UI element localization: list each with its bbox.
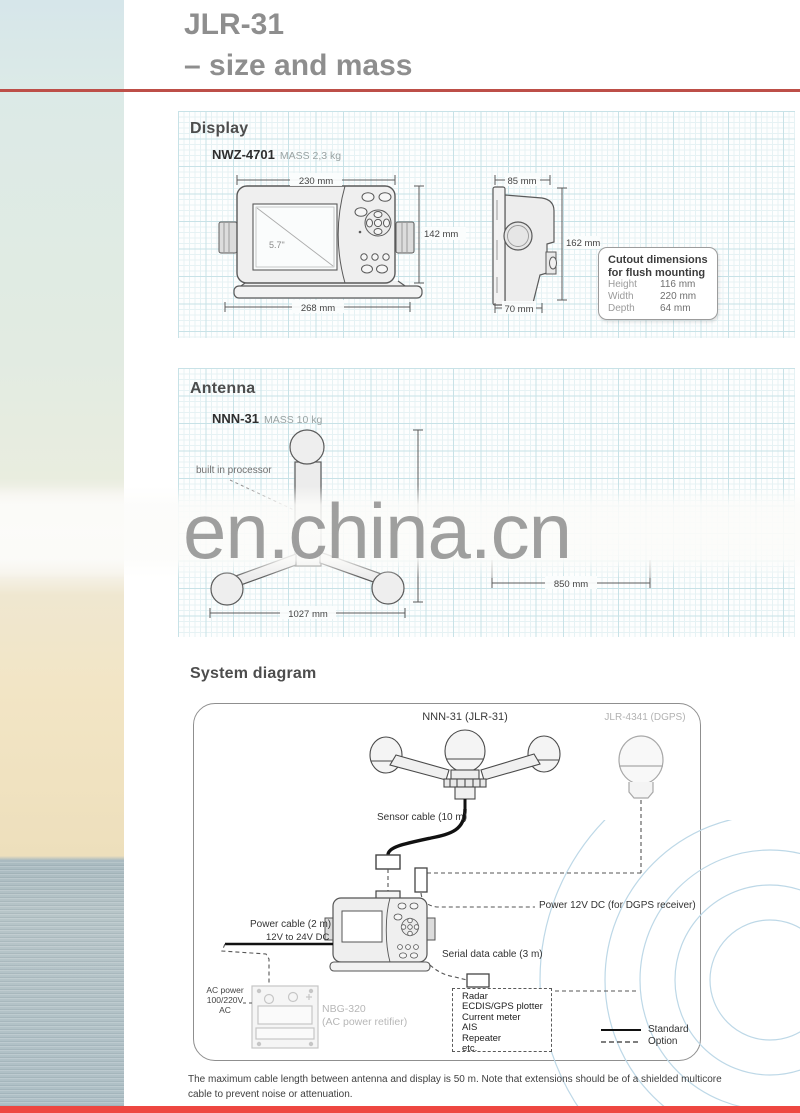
footer-note-line1: The maximum cable length between antenna… xyxy=(188,1072,722,1087)
rectifier-desc-label: (AC power retifier) xyxy=(322,1016,407,1028)
system-antenna-label: NNN-31 (JLR-31) xyxy=(400,711,530,723)
serial-cable-dashed xyxy=(430,965,467,980)
svg-text:85 mm: 85 mm xyxy=(507,176,536,187)
legend-option-label: Option xyxy=(648,1036,677,1047)
power-cable-label-line2: 12V to 24V DC xyxy=(266,932,329,943)
cutout-row-label: Width xyxy=(608,291,660,303)
dgps-power-label: Power 12V DC (for DGPS receiver) xyxy=(539,900,696,911)
rectifier-box xyxy=(252,986,318,1048)
legend-standard-label: Standard xyxy=(648,1024,689,1035)
antenna-width-dim: 1027 mm xyxy=(210,606,405,620)
bottom-red-bar xyxy=(0,1106,800,1113)
svg-text:230 mm: 230 mm xyxy=(299,176,333,187)
cutout-row-label: Depth xyxy=(608,303,660,315)
cutout-row-value: 220 mm xyxy=(660,291,696,303)
cutout-row: Height 116 mm xyxy=(608,279,708,291)
svg-text:1027 mm: 1027 mm xyxy=(288,609,328,620)
sensor-cable-label: Sensor cable (10 m) xyxy=(377,812,467,823)
legend-lines xyxy=(601,1030,641,1042)
cutout-row: Depth 64 mm xyxy=(608,303,708,315)
cutout-row-value: 64 mm xyxy=(660,303,691,315)
svg-text:268 mm: 268 mm xyxy=(301,303,335,314)
system-antenna xyxy=(370,730,560,799)
svg-text:70 mm: 70 mm xyxy=(504,304,533,315)
display-model: NWZ-4701 xyxy=(212,147,275,162)
rectifier-name-label: NBG-320 xyxy=(322,1003,366,1015)
dgps-dashed-cable xyxy=(427,800,641,873)
display-model-line: NWZ-4701MASS 2,3 kg xyxy=(212,146,341,164)
dgps-antenna xyxy=(619,736,663,798)
display-mass: MASS 2,3 kg xyxy=(280,150,341,162)
system-heading: System diagram xyxy=(190,665,316,683)
page-title-line2: – size and mass xyxy=(184,45,412,86)
dgps-power-connector xyxy=(415,868,427,892)
page-title: JLR-31 – size and mass xyxy=(184,4,412,86)
ac-power-label: AC power 100/220V AC xyxy=(200,985,250,1015)
screen-size-label: 5.7" xyxy=(269,240,285,250)
ac-power-line1: AC power xyxy=(200,985,250,995)
system-display-unit xyxy=(325,898,435,971)
side-body xyxy=(493,187,557,305)
power-cable-label-line1: Power cable (2 m) xyxy=(250,919,331,930)
watermark-text: en.china.cn xyxy=(183,486,571,576)
cutout-title-line1: Cutout dimensions xyxy=(608,254,708,267)
serial-cable-label: Serial data cable (3 m) xyxy=(442,949,543,960)
svg-text:142 mm: 142 mm xyxy=(424,229,458,240)
display-heading: Display xyxy=(190,120,248,138)
svg-text:850 mm: 850 mm xyxy=(554,579,588,590)
ac-power-line2: 100/220V AC xyxy=(200,995,250,1015)
cutout-row: Width 220 mm xyxy=(608,291,708,303)
dgps-power-dashed xyxy=(421,893,535,907)
datasheet-page: JLR-31 – size and mass Display NWZ-4701M… xyxy=(0,0,800,1113)
dgps-label: JLR-4341 (DGPS) xyxy=(598,712,692,723)
cutout-row-value: 116 mm xyxy=(660,279,695,291)
cutout-dimensions-box: Cutout dimensions for flush mounting Hei… xyxy=(598,247,718,320)
power-cable-dashed xyxy=(222,944,269,986)
serial-connector xyxy=(467,974,489,987)
cutout-title-line2: for flush mounting xyxy=(608,267,708,280)
page-title-line1: JLR-31 xyxy=(184,4,412,45)
display-panel: Display NWZ-4701MASS 2,3 kg xyxy=(178,111,795,338)
system-diagram-graphics xyxy=(193,703,701,1061)
footer-note-line2: cable to prevent noise or attenuation. xyxy=(188,1087,353,1102)
display-side-view: 85 mm 162 mm 70 mm xyxy=(480,165,600,320)
display-front-view: 5.7" 230 mm 14 xyxy=(208,169,478,319)
sea-texture xyxy=(0,862,124,1113)
cutout-row-label: Height xyxy=(608,279,660,291)
junction-connector xyxy=(376,855,400,869)
top-red-rule xyxy=(0,89,800,92)
watermark-band: en.china.cn xyxy=(0,486,800,578)
front-screen xyxy=(253,204,337,270)
svg-text:162 mm: 162 mm xyxy=(566,238,600,249)
